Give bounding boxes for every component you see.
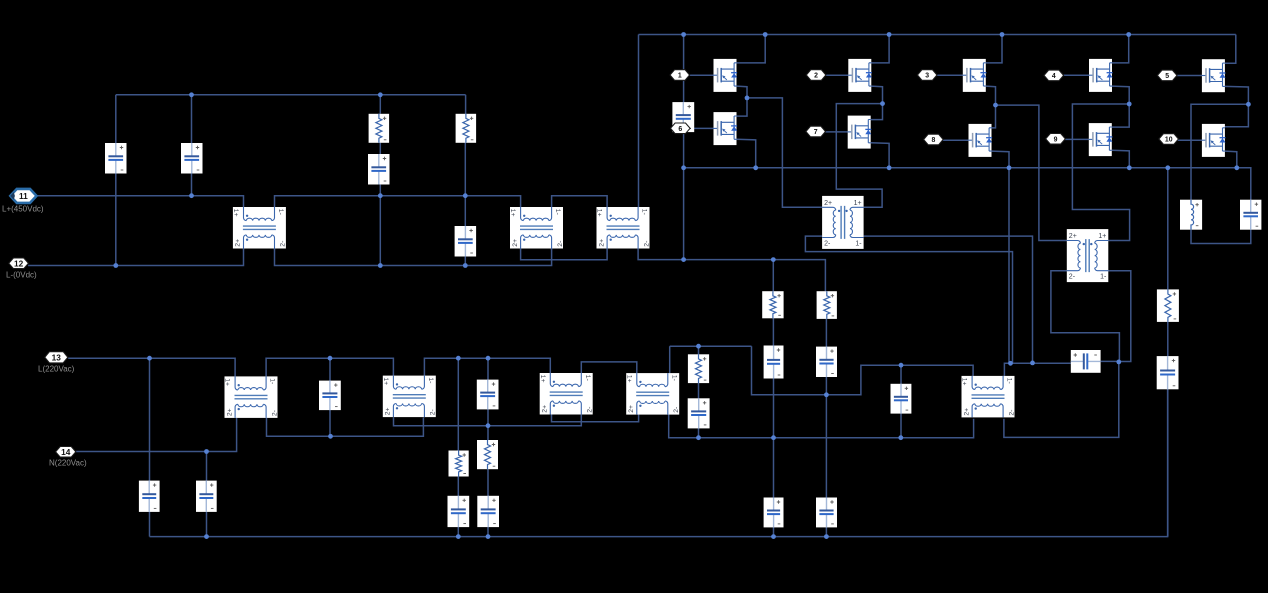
svg-text:2-: 2- — [280, 241, 287, 247]
svg-text:8: 8 — [931, 137, 935, 144]
svg-text:2-: 2- — [643, 241, 650, 247]
svg-text:2+: 2+ — [385, 408, 392, 416]
svg-text:1-: 1- — [554, 209, 561, 215]
svg-text:2+: 2+ — [963, 408, 970, 416]
svg-text:L(220Vac): L(220Vac) — [38, 365, 75, 374]
svg-text:L+(450Vdc): L+(450Vdc) — [2, 205, 44, 214]
svg-text:2-: 2- — [673, 407, 680, 413]
svg-text:1-: 1- — [670, 375, 677, 381]
svg-text:2+: 2+ — [235, 239, 242, 247]
svg-text:2+: 2+ — [1069, 233, 1077, 240]
svg-text:1-: 1- — [1006, 378, 1013, 384]
svg-text:3: 3 — [925, 73, 929, 80]
svg-text:6: 6 — [678, 126, 682, 133]
svg-text:1-: 1- — [641, 209, 648, 215]
svg-text:N(220Vac): N(220Vac) — [49, 459, 87, 468]
svg-text:1-: 1- — [277, 209, 284, 215]
svg-text:2+: 2+ — [542, 405, 549, 413]
svg-text:2-: 2- — [587, 407, 594, 413]
svg-text:2+: 2+ — [226, 408, 233, 416]
svg-text:2+: 2+ — [512, 239, 519, 247]
svg-text:4: 4 — [1052, 73, 1056, 80]
svg-text:2-: 2- — [430, 409, 437, 415]
svg-text:1+: 1+ — [382, 377, 389, 385]
svg-text:2-: 2- — [557, 241, 564, 247]
svg-text:1-: 1- — [855, 240, 862, 247]
svg-text:1-: 1- — [584, 375, 591, 381]
svg-text:1+: 1+ — [509, 209, 516, 217]
svg-text:1+: 1+ — [854, 200, 862, 207]
svg-text:13: 13 — [52, 352, 62, 362]
svg-text:14: 14 — [61, 447, 71, 457]
svg-text:2-: 2- — [271, 410, 278, 416]
svg-text:1+: 1+ — [224, 378, 231, 386]
svg-text:1+: 1+ — [596, 209, 603, 217]
svg-text:1-: 1- — [1100, 274, 1107, 281]
svg-text:2-: 2- — [1008, 410, 1015, 416]
svg-text:2+: 2+ — [824, 200, 832, 207]
svg-text:2-: 2- — [824, 240, 831, 247]
svg-text:2+: 2+ — [598, 239, 605, 247]
svg-text:11: 11 — [19, 191, 28, 201]
svg-text:1+: 1+ — [961, 378, 968, 386]
svg-text:2+: 2+ — [628, 405, 635, 413]
svg-text:1+: 1+ — [232, 209, 239, 217]
svg-text:10: 10 — [1165, 137, 1173, 144]
svg-text:2: 2 — [814, 73, 818, 80]
svg-text:1+: 1+ — [625, 375, 632, 383]
svg-text:12: 12 — [14, 258, 24, 268]
svg-text:1: 1 — [678, 73, 682, 80]
svg-text:1+: 1+ — [539, 375, 546, 383]
svg-text:7: 7 — [814, 129, 818, 136]
svg-text:5: 5 — [1165, 73, 1169, 80]
svg-text:9: 9 — [1054, 136, 1058, 143]
svg-text:L-(0Vdc): L-(0Vdc) — [6, 271, 37, 280]
svg-text:1-: 1- — [427, 377, 434, 383]
svg-text:2-: 2- — [1069, 274, 1076, 281]
svg-text:1+: 1+ — [1098, 233, 1106, 240]
svg-text:1-: 1- — [269, 378, 276, 384]
